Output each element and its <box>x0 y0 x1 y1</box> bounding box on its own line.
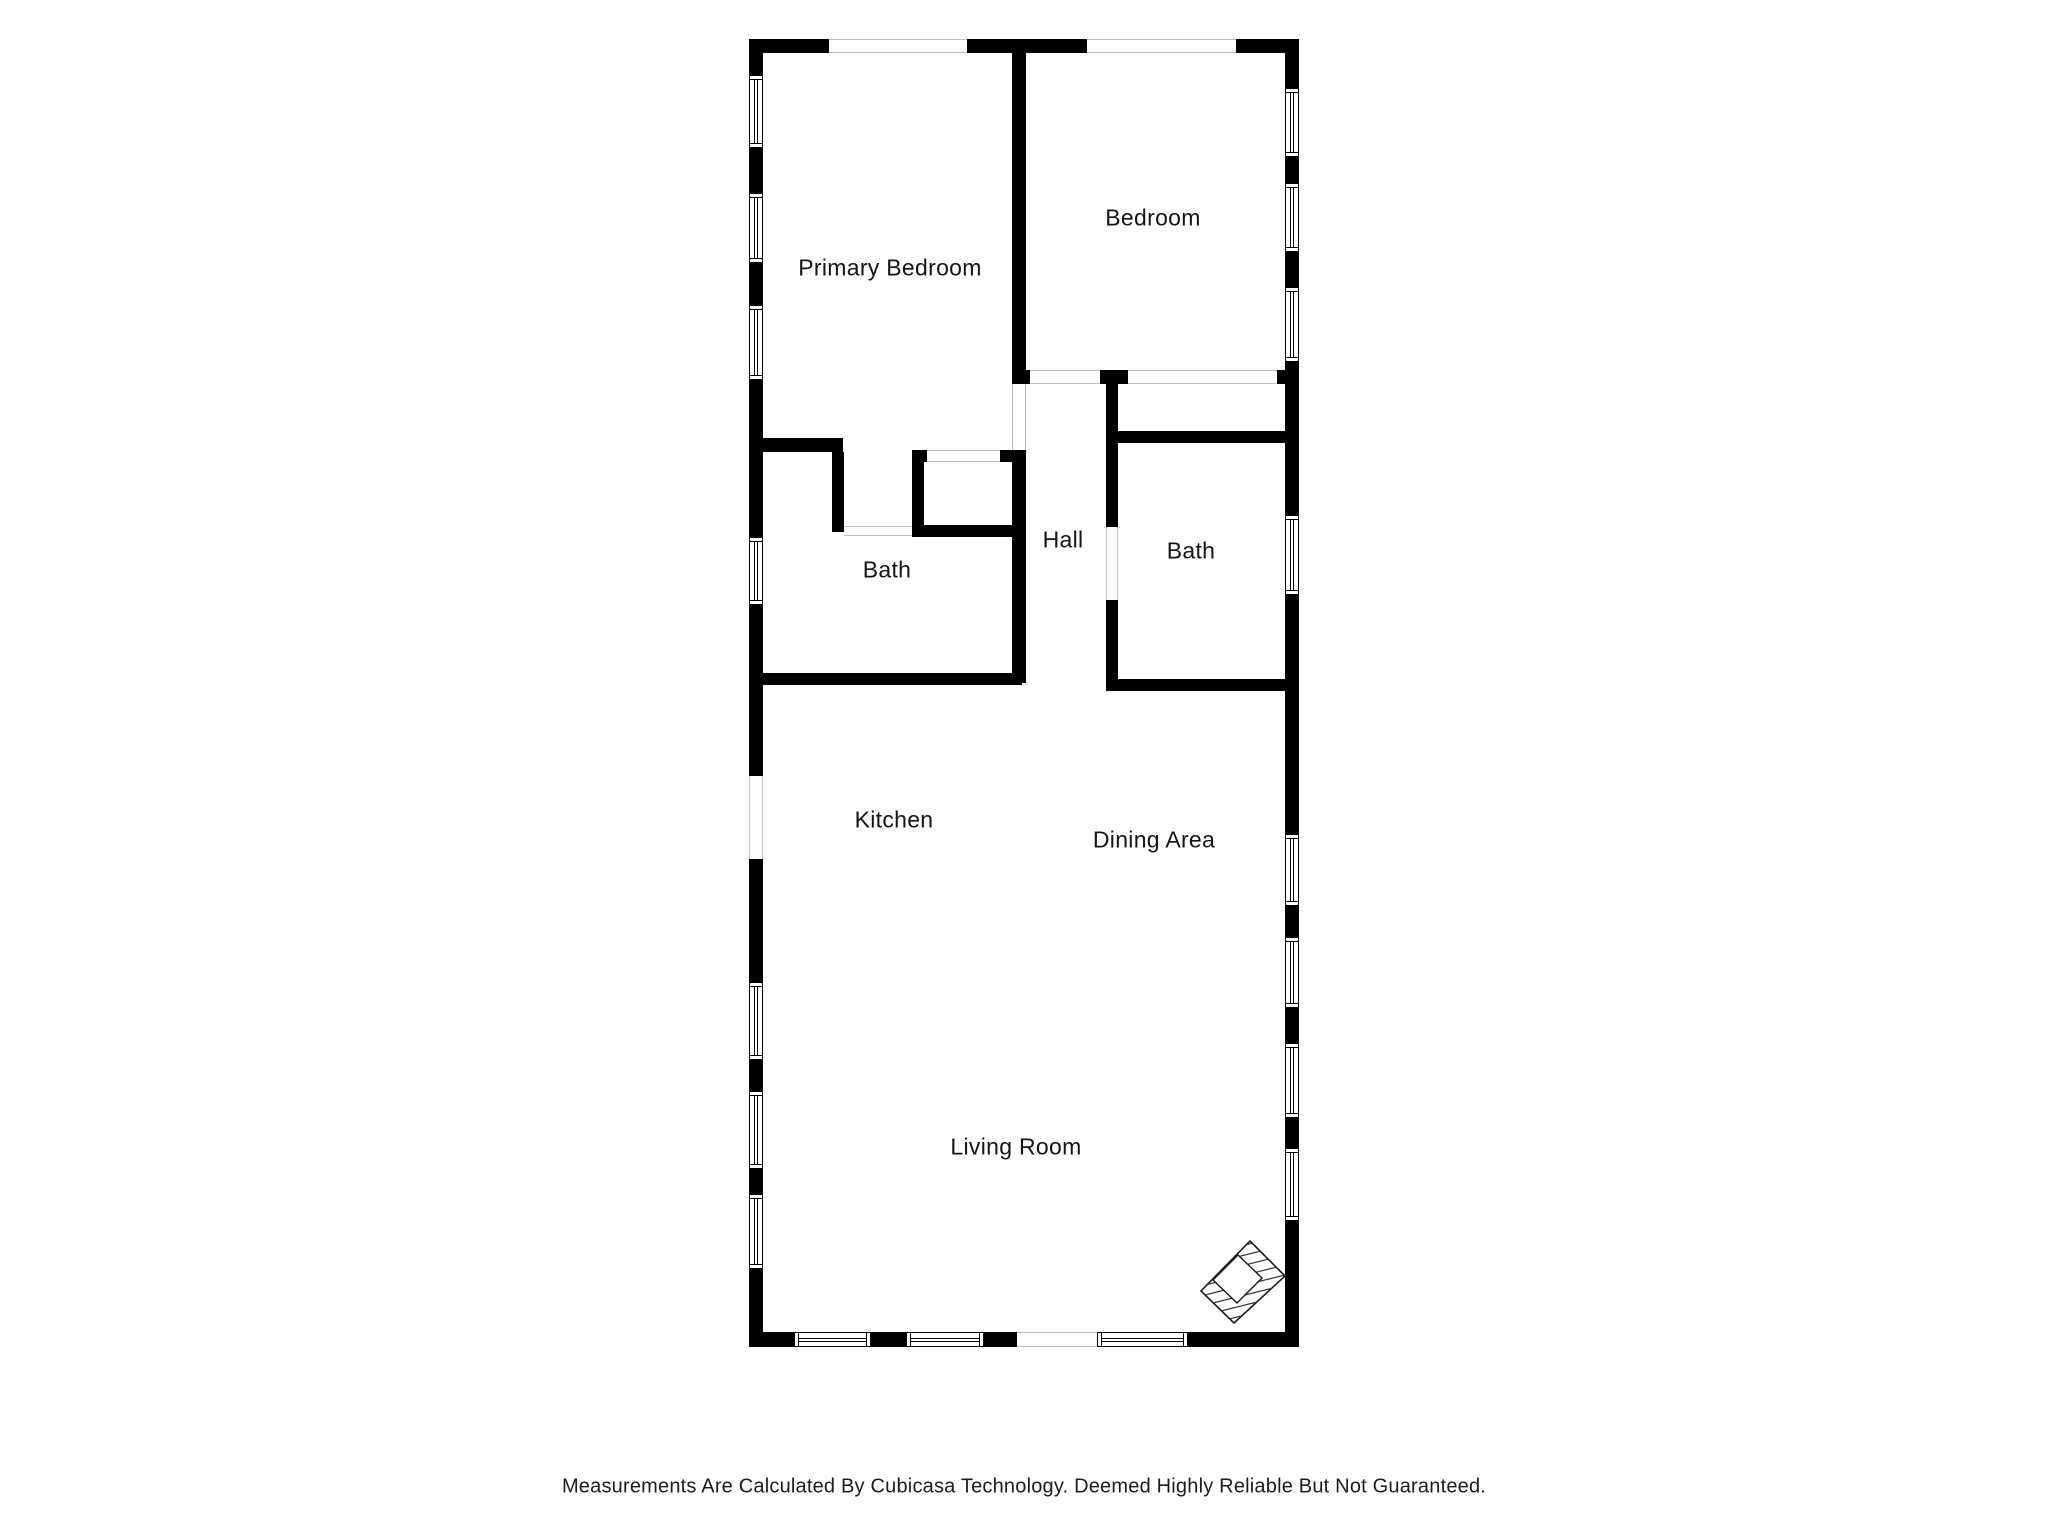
wall-segment <box>1012 450 1026 683</box>
wall-segment <box>871 1332 906 1347</box>
window-icon <box>749 982 763 1060</box>
wall-segment <box>749 1332 794 1347</box>
wall-segment <box>1000 450 1022 462</box>
door-opening <box>1017 1332 1097 1347</box>
window-icon <box>749 193 763 263</box>
room-label-kitchen: Kitchen <box>855 807 934 834</box>
wall-segment <box>749 148 763 193</box>
room-label-bath-1: Bath <box>863 557 912 584</box>
window-icon <box>1285 1043 1299 1118</box>
window-icon <box>749 537 763 605</box>
door-opening <box>1128 370 1277 384</box>
window-icon <box>1285 834 1299 906</box>
wall-segment <box>1100 370 1128 384</box>
window-icon <box>1285 1148 1299 1221</box>
wall-segment <box>1012 39 1026 384</box>
wall-segment <box>1106 600 1118 691</box>
north-compass-icon <box>1190 1228 1302 1330</box>
wall-segment <box>832 452 844 532</box>
wall-segment <box>749 1060 763 1091</box>
wall-segment <box>763 673 1022 685</box>
door-opening <box>1106 527 1118 600</box>
room-label-hall: Hall <box>1043 527 1084 554</box>
wall-segment <box>1285 1118 1299 1148</box>
window-icon <box>1285 515 1299 595</box>
room-label-primary-bedroom: Primary Bedroom <box>798 255 981 282</box>
window-icon <box>1285 937 1299 1008</box>
door-opening <box>829 39 967 53</box>
door-opening <box>1087 39 1236 53</box>
wall-segment <box>967 39 1087 53</box>
wall-segment <box>984 1332 1017 1347</box>
wall-segment <box>749 263 763 305</box>
floor-plan-page: Primary BedroomBedroomBathHallBathKitche… <box>0 0 2048 1536</box>
door-opening <box>749 776 763 859</box>
wall-segment <box>749 380 763 537</box>
wall-segment <box>1285 595 1299 834</box>
window-icon <box>749 305 763 380</box>
wall-segment <box>912 450 927 462</box>
window-icon <box>906 1332 984 1347</box>
door-opening <box>1030 370 1100 384</box>
window-icon <box>1097 1332 1188 1347</box>
wall-segment <box>1285 39 1299 88</box>
wall-segment <box>912 450 924 537</box>
wall-segment <box>1188 1332 1299 1347</box>
wall-segment <box>763 438 843 452</box>
window-icon <box>1285 88 1299 157</box>
wall-segment <box>749 1169 763 1194</box>
disclaimer-text: Measurements Are Calculated By Cubicasa … <box>562 1476 1486 1499</box>
wall-segment <box>1106 384 1118 527</box>
window-icon <box>794 1332 871 1347</box>
window-icon <box>749 75 763 148</box>
wall-segment <box>912 525 1022 537</box>
window-icon <box>749 1091 763 1169</box>
door-opening <box>1012 384 1026 450</box>
window-icon <box>1285 183 1299 252</box>
room-label-bath-2: Bath <box>1167 538 1216 565</box>
wall-segment <box>1285 1008 1299 1043</box>
room-label-living-room: Living Room <box>950 1134 1081 1161</box>
wall-segment <box>1285 157 1299 183</box>
room-label-dining-area: Dining Area <box>1093 827 1215 854</box>
window-icon <box>749 1194 763 1269</box>
wall-segment <box>1106 679 1298 691</box>
wall-segment <box>749 39 763 75</box>
wall-segment <box>1285 906 1299 937</box>
door-opening <box>844 526 912 536</box>
wall-segment <box>1012 370 1030 384</box>
door-opening <box>927 450 1000 462</box>
wall-segment <box>1118 431 1298 443</box>
window-icon <box>1285 287 1299 362</box>
wall-segment <box>749 859 763 982</box>
wall-segment <box>749 605 763 776</box>
room-label-bedroom: Bedroom <box>1105 205 1200 232</box>
wall-segment <box>1277 370 1299 384</box>
wall-segment <box>1285 252 1299 287</box>
